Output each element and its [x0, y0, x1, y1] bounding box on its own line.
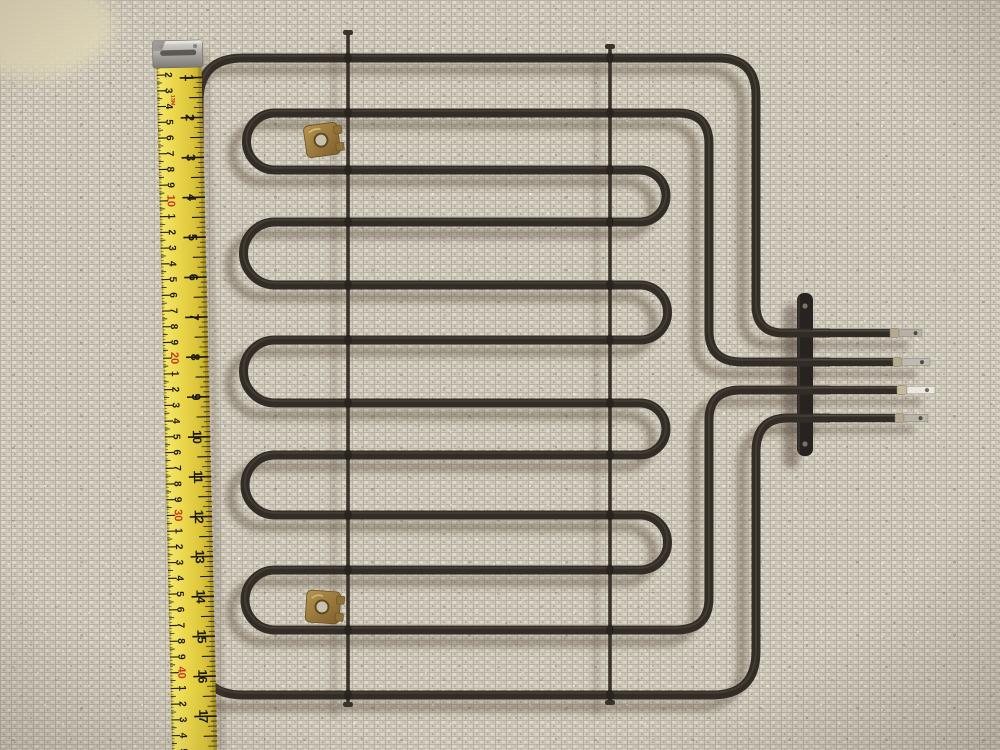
photo-canvas: 1234567891012345678920123456789301234567… [0, 0, 1000, 750]
vignette-overlay [0, 0, 1000, 750]
photo-oven-heating-element: 1234567891012345678920123456789301234567… [0, 0, 1000, 750]
